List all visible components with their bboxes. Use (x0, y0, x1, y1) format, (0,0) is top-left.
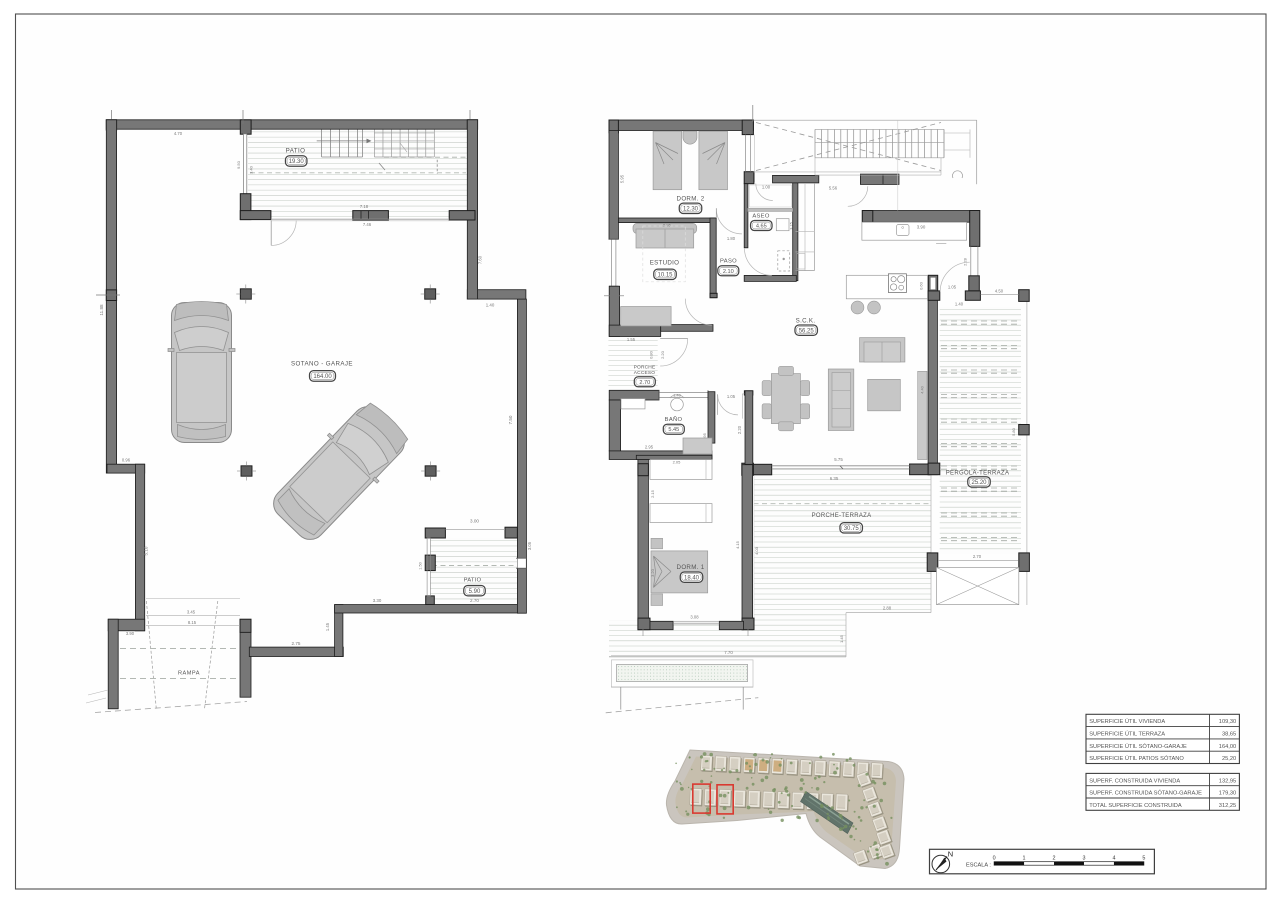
svg-text:ACCESO: ACCESO (634, 370, 656, 376)
svg-text:2.70: 2.70 (973, 554, 982, 559)
svg-text:30.75: 30.75 (844, 526, 860, 532)
svg-text:7.70: 7.70 (724, 650, 733, 655)
svg-text:PATIO: PATIO (464, 578, 482, 584)
svg-text:3.08: 3.08 (690, 614, 699, 619)
svg-text:2.20: 2.20 (660, 350, 665, 359)
svg-text:56.25: 56.25 (799, 328, 815, 334)
svg-text:SUPERF. CONSTRUIDA SÓTANO-GARA: SUPERF. CONSTRUIDA SÓTANO-GARAJE (1089, 790, 1202, 797)
svg-text:3.45: 3.45 (187, 610, 196, 615)
svg-text:SOTANO - GARAJE: SOTANO - GARAJE (291, 361, 353, 368)
svg-text:1.40: 1.40 (955, 302, 964, 307)
svg-text:0.80: 0.80 (649, 350, 654, 359)
svg-text:1.40: 1.40 (673, 392, 682, 397)
svg-text:SUPERFICIE ÚTIL VIVIENDA: SUPERFICIE ÚTIL VIVIENDA (1089, 718, 1165, 725)
svg-text:BAÑO: BAÑO (665, 416, 683, 423)
svg-text:11.88: 11.88 (99, 304, 104, 316)
svg-text:4.40: 4.40 (921, 386, 925, 393)
svg-text:3.05: 3.05 (527, 541, 532, 550)
svg-text:DORM. 2: DORM. 2 (677, 195, 705, 202)
svg-text:2.28: 2.28 (963, 257, 968, 266)
svg-text:1.75: 1.75 (609, 423, 614, 432)
svg-text:1.50: 1.50 (419, 562, 423, 569)
svg-text:19.30: 19.30 (289, 159, 305, 165)
svg-text:5.75: 5.75 (834, 457, 843, 462)
svg-text:3.00: 3.00 (470, 519, 479, 524)
svg-text:DORM. 1: DORM. 1 (677, 564, 705, 571)
svg-text:3: 3 (1082, 855, 1085, 861)
svg-text:SUPERFICIE ÚTIL PATIOS SÓTANO: SUPERFICIE ÚTIL PATIOS SÓTANO (1089, 755, 1184, 762)
svg-text:5.95: 5.95 (620, 174, 625, 183)
svg-text:1.80: 1.80 (727, 236, 736, 241)
svg-text:0.96: 0.96 (122, 458, 131, 463)
svg-text:5.90: 5.90 (469, 589, 481, 595)
svg-text:164.00: 164.00 (313, 374, 332, 380)
svg-text:ESTUDIO: ESTUDIO (650, 260, 680, 267)
svg-text:8.15: 8.15 (188, 620, 197, 625)
svg-text:PORCHE: PORCHE (634, 364, 656, 370)
svg-text:N: N (948, 850, 953, 859)
svg-text:3.15: 3.15 (790, 222, 794, 229)
svg-text:3.30: 3.30 (373, 598, 382, 603)
svg-text:ESCALA :: ESCALA : (966, 862, 991, 868)
svg-text:18.40: 18.40 (684, 575, 700, 581)
svg-text:1.05: 1.05 (948, 285, 957, 290)
svg-text:SUPERFICIE ÚTIL SÓTANO-GARAJE: SUPERFICIE ÚTIL SÓTANO-GARAJE (1089, 743, 1187, 750)
svg-text:25,20: 25,20 (1222, 756, 1236, 762)
svg-text:7.18: 7.18 (360, 204, 369, 209)
svg-text:2.10: 2.10 (723, 269, 734, 275)
svg-text:4.65: 4.65 (756, 224, 767, 230)
svg-text:1.55: 1.55 (627, 337, 636, 342)
svg-text:2: 2 (1053, 855, 1056, 861)
svg-text:1: 1 (1023, 855, 1026, 861)
svg-text:0: 0 (993, 855, 996, 861)
svg-text:SUPERFICIE ÚTIL TERRAZA: SUPERFICIE ÚTIL TERRAZA (1089, 730, 1165, 737)
svg-text:38,65: 38,65 (1222, 731, 1236, 737)
svg-text:109,30: 109,30 (1219, 719, 1236, 725)
svg-text:PASO: PASO (720, 259, 737, 265)
svg-text:4.70: 4.70 (174, 131, 183, 136)
svg-text:12.30: 12.30 (683, 206, 699, 212)
svg-text:2.15: 2.15 (650, 489, 655, 498)
svg-text:4.50: 4.50 (995, 289, 1004, 294)
svg-text:PATIO: PATIO (286, 147, 306, 154)
svg-text:3.90: 3.90 (126, 631, 135, 636)
svg-text:164,00: 164,00 (1219, 744, 1236, 750)
svg-text:2.70: 2.70 (639, 380, 650, 386)
svg-text:2.20: 2.20 (737, 425, 742, 434)
svg-text:2.75: 2.75 (292, 641, 301, 646)
svg-text:4: 4 (1112, 855, 1115, 861)
svg-text:PERGOLA-TERRAZA: PERGOLA-TERRAZA (946, 470, 1010, 476)
svg-text:312,25: 312,25 (1219, 803, 1236, 809)
svg-text:TOTAL SUPERFICIE CONSTRUIDA: TOTAL SUPERFICIE CONSTRUIDA (1089, 803, 1182, 809)
svg-text:3.40: 3.40 (249, 165, 254, 174)
svg-text:3.20: 3.20 (650, 568, 655, 577)
svg-text:5.45: 5.45 (668, 427, 679, 433)
svg-text:1.05: 1.05 (727, 394, 736, 399)
svg-text:5: 5 (1142, 855, 1145, 861)
svg-text:0.60: 0.60 (919, 281, 924, 290)
svg-text:S.C.K.: S.C.K. (796, 317, 816, 324)
svg-text:2.88: 2.88 (883, 606, 892, 611)
svg-text:2.95: 2.95 (645, 445, 654, 450)
svg-text:5.56: 5.56 (829, 186, 838, 191)
svg-text:1.50: 1.50 (628, 394, 637, 399)
svg-text:179,30: 179,30 (1219, 791, 1236, 797)
svg-text:132,95: 132,95 (1219, 778, 1236, 784)
svg-text:7.46: 7.46 (363, 222, 372, 227)
svg-text:SUPERF. CONSTRUIDA VIVIENDA: SUPERF. CONSTRUIDA VIVIENDA (1089, 778, 1180, 784)
svg-text:1.45: 1.45 (839, 634, 844, 643)
svg-text:25.20: 25.20 (971, 480, 987, 486)
svg-text:4.15: 4.15 (735, 540, 740, 549)
svg-text:1.45: 1.45 (325, 622, 330, 631)
svg-text:9.50: 9.50 (236, 160, 241, 169)
svg-text:5.95: 5.95 (663, 223, 672, 228)
svg-text:4.03: 4.03 (754, 546, 759, 555)
svg-text:10.15: 10.15 (657, 272, 673, 278)
svg-text:5.80: 5.80 (1011, 427, 1016, 436)
svg-text:3.90: 3.90 (917, 225, 926, 230)
svg-text:RAMPA: RAMPA (178, 671, 200, 677)
svg-text:6.35: 6.35 (830, 476, 839, 481)
svg-text:7.60: 7.60 (478, 255, 483, 264)
svg-text:2.05: 2.05 (673, 460, 682, 465)
svg-text:5.10: 5.10 (144, 546, 149, 555)
svg-text:1.40: 1.40 (486, 303, 495, 308)
svg-text:2.70: 2.70 (470, 598, 479, 603)
svg-text:7.50: 7.50 (508, 415, 513, 424)
svg-text:PORCHE-TERRAZA: PORCHE-TERRAZA (812, 513, 872, 519)
svg-text:ASEO: ASEO (752, 214, 769, 220)
